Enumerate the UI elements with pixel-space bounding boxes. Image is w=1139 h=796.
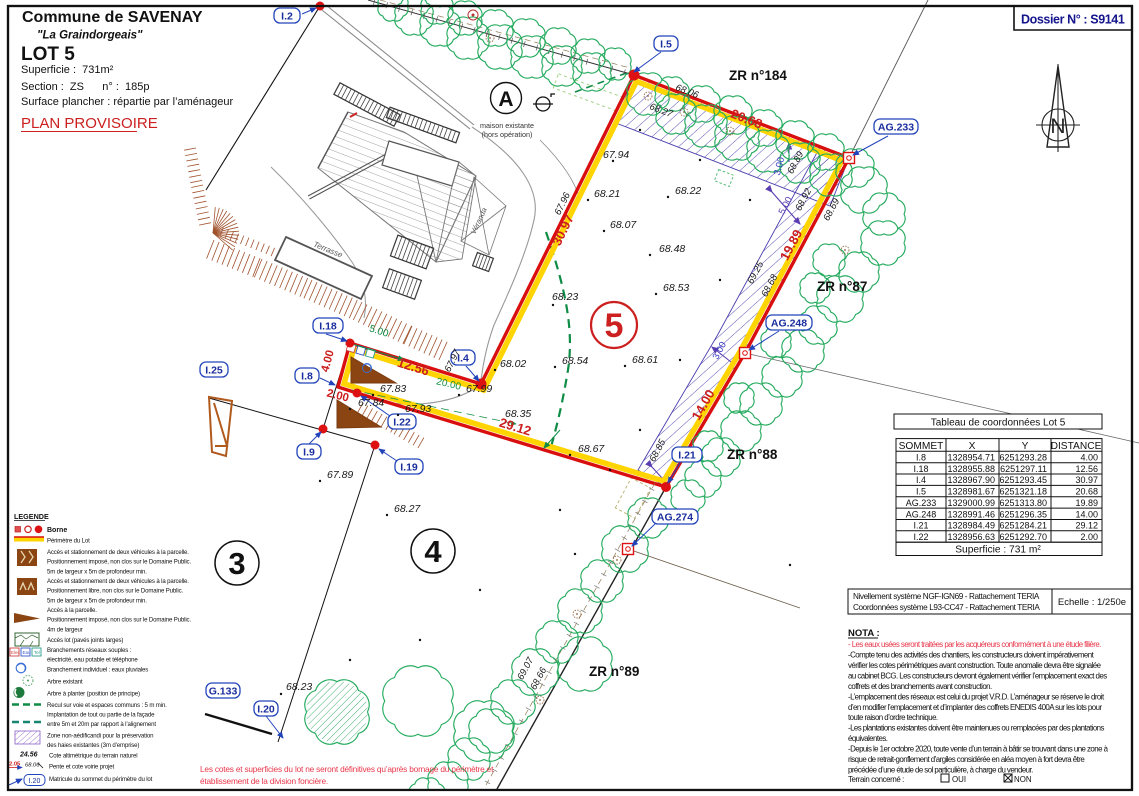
svg-text:6251293.28: 6251293.28 <box>999 453 1047 463</box>
svg-text:ZR n°87: ZR n°87 <box>817 279 867 294</box>
svg-text:3: 3 <box>228 546 245 581</box>
svg-text:67.84: 67.84 <box>358 397 384 409</box>
svg-text:I.18: I.18 <box>319 321 337 333</box>
svg-text:68.61: 68.61 <box>632 354 658 366</box>
svg-text:I.8: I.8 <box>301 371 313 383</box>
svg-text:Zone non-aédificandi pour la p: Zone non-aédificandi pour la préservatio… <box>47 732 153 739</box>
svg-text:risque de retrait-gonflement d: risque de retrait-gonflement d’argiles c… <box>848 755 1085 764</box>
svg-text:67.99: 67.99 <box>466 383 492 395</box>
svg-text:14.00: 14.00 <box>1075 509 1098 519</box>
svg-text:Eau: Eau <box>23 650 32 655</box>
svg-text:6251297.11: 6251297.11 <box>1000 464 1047 474</box>
svg-text:5m de largeur x 5m de profonde: 5m de largeur x 5m de profondeur min. <box>47 568 147 575</box>
svg-text:I.25: I.25 <box>205 365 223 377</box>
svg-text:Surface plancher : répartie pa: Surface plancher : répartie par l’aménag… <box>21 96 234 108</box>
svg-text:PLAN PROVISOIRE: PLAN PROVISOIRE <box>21 115 158 132</box>
svg-text:2.00: 2.00 <box>1080 532 1098 542</box>
svg-text:Superficie : 731m²: Superficie : 731m² <box>21 64 114 76</box>
svg-text:I.20: I.20 <box>257 704 275 716</box>
svg-text:2.05: 2.05 <box>9 762 21 768</box>
svg-text:Section : ZS n° : 185p: Section : ZS n° : 185p <box>21 81 150 93</box>
svg-text:I.20: I.20 <box>29 778 41 785</box>
svg-text:67.83: 67.83 <box>380 383 406 395</box>
svg-text:N: N <box>1050 115 1065 138</box>
svg-text:ZR n°89: ZR n°89 <box>589 664 639 679</box>
svg-text:6251292.70: 6251292.70 <box>999 532 1047 542</box>
svg-text:I.4: I.4 <box>916 475 926 485</box>
svg-text:4.00: 4.00 <box>1080 453 1098 463</box>
svg-text:Tel: Tel <box>34 650 40 655</box>
svg-text:Elec: Elec <box>11 650 21 655</box>
svg-text:AG.233: AG.233 <box>906 498 937 508</box>
svg-text:Positionnement imposé, non clo: Positionnement imposé, non clos sur le D… <box>47 617 191 624</box>
svg-text:6251321.18: 6251321.18 <box>999 487 1047 497</box>
svg-text:68.23: 68.23 <box>286 681 312 693</box>
svg-text:Commune de SAVENAY: Commune de SAVENAY <box>22 9 203 26</box>
svg-text:1328984.49: 1328984.49 <box>947 521 995 531</box>
svg-text:Implantation de tout ou partie: Implantation de tout ou partie de la faç… <box>47 711 155 718</box>
svg-text:ZR n°88: ZR n°88 <box>727 447 778 462</box>
svg-text:Pente et cote voirie projet: Pente et cote voirie projet <box>49 764 115 771</box>
svg-text:SOMMET: SOMMET <box>899 441 944 452</box>
svg-text:précédée d’une étude de sol pa: précédée d’une étude de sol particulière… <box>848 766 1033 775</box>
svg-text:LEGENDE: LEGENDE <box>14 512 49 521</box>
svg-text:5m de largeur x 5m de profonde: 5m de largeur x 5m de profondeur min. <box>47 597 147 604</box>
svg-text:(hors opération): (hors opération) <box>482 130 533 139</box>
svg-text:1328981.67: 1328981.67 <box>947 487 995 497</box>
svg-text:DISTANCE: DISTANCE <box>1051 441 1102 452</box>
svg-text:G.133: G.133 <box>209 686 238 698</box>
svg-text:Nivellement système NGF-IGN69: Nivellement système NGF-IGN69 - Rattache… <box>853 592 1040 601</box>
svg-text:Recul sur voie et espaces comm: Recul sur voie et espaces communs : 5 m … <box>47 702 167 709</box>
svg-text:30.97: 30.97 <box>1075 475 1098 485</box>
svg-text:68.67: 68.67 <box>578 443 605 455</box>
svg-text:20.68: 20.68 <box>1075 487 1098 497</box>
svg-text:Matricule du sommet du périmèt: Matricule du sommet du périmètre du lot <box>49 776 153 783</box>
svg-text:maison existante: maison existante <box>480 121 534 130</box>
svg-text:I.8: I.8 <box>916 453 926 463</box>
svg-text:1328954.71: 1328954.71 <box>947 453 995 463</box>
svg-text:Accès lot (pavés joints larges: Accès lot (pavés joints larges) <box>47 637 123 644</box>
svg-text:29.12: 29.12 <box>1075 521 1098 531</box>
svg-text:-Les plantations existantes do: -Les plantations existantes doivent être… <box>848 724 1105 733</box>
svg-text:68.27: 68.27 <box>394 503 421 515</box>
svg-text:I.5: I.5 <box>660 39 672 51</box>
svg-text:A: A <box>498 88 513 111</box>
svg-text:AG.248: AG.248 <box>906 509 937 519</box>
svg-text:I.22: I.22 <box>913 532 928 542</box>
svg-text:5: 5 <box>605 307 624 345</box>
svg-text:d’en modifier l’emplacement et: d’en modifier l’emplacement et d’implant… <box>848 703 1102 712</box>
svg-text:Accès et stationnement de deux: Accès et stationnement de deux véhicules… <box>47 549 189 556</box>
svg-text:6251296.35: 6251296.35 <box>999 509 1047 519</box>
svg-text:toute raison d’ordre technique: toute raison d’ordre technique. <box>848 713 938 722</box>
svg-text:1329000.99: 1329000.99 <box>947 498 995 508</box>
svg-text:Tableau de coordonnées Lot 5: Tableau de coordonnées Lot 5 <box>931 418 1066 429</box>
svg-text:Echelle : 1/250e: Echelle : 1/250e <box>1058 597 1126 608</box>
svg-text:Borne: Borne <box>47 527 67 534</box>
svg-text:AG.248: AG.248 <box>771 318 807 330</box>
svg-text:1328956.63: 1328956.63 <box>947 532 995 542</box>
svg-text:67.89: 67.89 <box>327 469 353 481</box>
svg-text:Les cotes et superficies du lo: Les cotes et superficies du lot ne seron… <box>200 764 494 774</box>
svg-text:4: 4 <box>424 534 442 569</box>
svg-text:Périmètre du Lot: Périmètre du Lot <box>47 538 90 545</box>
svg-text:Accès et stationnement de deux: Accès et stationnement de deux véhicules… <box>47 578 189 585</box>
svg-text:coffrets et des branchements a: coffrets et des branchements avant const… <box>848 682 992 691</box>
svg-text:-Compte tenu des activités des: -Compte tenu des activités des chantiers… <box>848 651 1095 660</box>
svg-text:I.22: I.22 <box>393 417 411 429</box>
svg-text:au cabinet BCG. Les constructe: au cabinet BCG. Les constructeurs devron… <box>848 671 1107 680</box>
svg-text:AG.274: AG.274 <box>657 512 693 524</box>
svg-text:68.54: 68.54 <box>562 355 588 367</box>
svg-text:19.89: 19.89 <box>1075 498 1098 508</box>
svg-text:1328967.90: 1328967.90 <box>947 475 995 485</box>
svg-text:4m de largeur: 4m de largeur <box>47 626 83 633</box>
svg-text:68.22: 68.22 <box>675 185 701 197</box>
svg-text:Positionnement libre, non clos: Positionnement libre, non clos sur le Do… <box>47 588 183 595</box>
svg-text:Branchement individuel : eaux: Branchement individuel : eaux pluviales <box>47 667 148 674</box>
svg-text:Superficie : 731 m²: Superficie : 731 m² <box>955 545 1041 556</box>
svg-text:I.19: I.19 <box>400 462 418 474</box>
svg-text:I.21: I.21 <box>913 521 928 531</box>
svg-text:-Depuis le 1er octobre 2020, t: -Depuis le 1er octobre 2020, toute vente… <box>848 745 1109 754</box>
svg-text:I.9: I.9 <box>303 447 315 459</box>
svg-text:X: X <box>969 441 976 452</box>
svg-text:I.21: I.21 <box>678 450 696 462</box>
svg-text:établissement de la division f: établissement de la division foncière. <box>200 776 328 786</box>
svg-text:Branchements réseaux souples :: Branchements réseaux souples : <box>47 647 132 654</box>
svg-text:1328991.46: 1328991.46 <box>947 509 995 519</box>
svg-text:1328955.88: 1328955.88 <box>947 464 995 474</box>
svg-text:24.56: 24.56 <box>19 752 38 759</box>
svg-text:67.93: 67.93 <box>405 403 431 415</box>
svg-text:NOTA :: NOTA : <box>848 628 880 639</box>
svg-text:68.23: 68.23 <box>552 291 578 303</box>
svg-text:LOT 5: LOT 5 <box>21 44 75 65</box>
svg-text:électricité, eau potable et té: électricité, eau potable et téléphone <box>47 657 138 664</box>
svg-text:- Les eaux usées seront traité: - Les eaux usées seront traitées par les… <box>848 640 1101 649</box>
svg-text:I.5: I.5 <box>916 487 926 497</box>
svg-text:Coordonnées système L93-CC47: Coordonnées système L93-CC47 - Rattachem… <box>853 603 1040 612</box>
svg-text:vérifier les cotes périmétriqu: vérifier les cotes périmétriques avant c… <box>848 661 1102 670</box>
svg-text:des haies existantes (3m d’emp: des haies existantes (3m d’emprise) <box>47 742 139 749</box>
svg-text:Accès à la parcelle.: Accès à la parcelle. <box>47 607 97 614</box>
svg-text:Dossier N° : S9141: Dossier N° : S9141 <box>1021 13 1125 27</box>
svg-text:68.35: 68.35 <box>505 408 531 420</box>
svg-text:67.94: 67.94 <box>603 149 629 161</box>
svg-text:68.21: 68.21 <box>594 188 620 200</box>
svg-text:68.07: 68.07 <box>610 219 637 231</box>
svg-text:entre 5m et 20m par rapport à: entre 5m et 20m par rapport à l’aligneme… <box>47 721 156 728</box>
svg-text:-L’emplacement des réseaux est: -L’emplacement des réseaux est celui du … <box>848 692 1105 701</box>
svg-text:Cote altimétrique du terrain n: Cote altimétrique du terrain naturel <box>49 753 137 760</box>
svg-text:AG.233: AG.233 <box>878 122 914 134</box>
svg-text:ZR n°184: ZR n°184 <box>729 68 787 83</box>
svg-text:OUI: OUI <box>952 775 966 784</box>
svg-text:Terrain concerné :: Terrain concerné : <box>848 775 904 784</box>
svg-text:équivalentes.: équivalentes. <box>848 734 888 743</box>
svg-text:6251293.45: 6251293.45 <box>999 475 1047 485</box>
svg-text:Positionnement imposé, non clo: Positionnement imposé, non clos sur le D… <box>47 559 191 566</box>
svg-text:68.53: 68.53 <box>663 282 689 294</box>
svg-text:12.56: 12.56 <box>1075 464 1098 474</box>
svg-text:Y: Y <box>1022 441 1029 452</box>
svg-text:6251284.21: 6251284.21 <box>999 521 1047 531</box>
svg-text:Arbre existant: Arbre existant <box>47 679 83 686</box>
svg-text:NON: NON <box>1014 775 1032 784</box>
svg-text:I.18: I.18 <box>913 464 928 474</box>
svg-text:I.2: I.2 <box>281 11 293 23</box>
svg-text:"La Graindorgeais": "La Graindorgeais" <box>37 30 143 42</box>
svg-text:6251313.80: 6251313.80 <box>999 498 1047 508</box>
svg-text:68.48: 68.48 <box>659 243 685 255</box>
svg-text:68.02: 68.02 <box>500 358 526 370</box>
svg-text:Arbre à planter (position de p: Arbre à planter (position de principe) <box>47 691 140 698</box>
